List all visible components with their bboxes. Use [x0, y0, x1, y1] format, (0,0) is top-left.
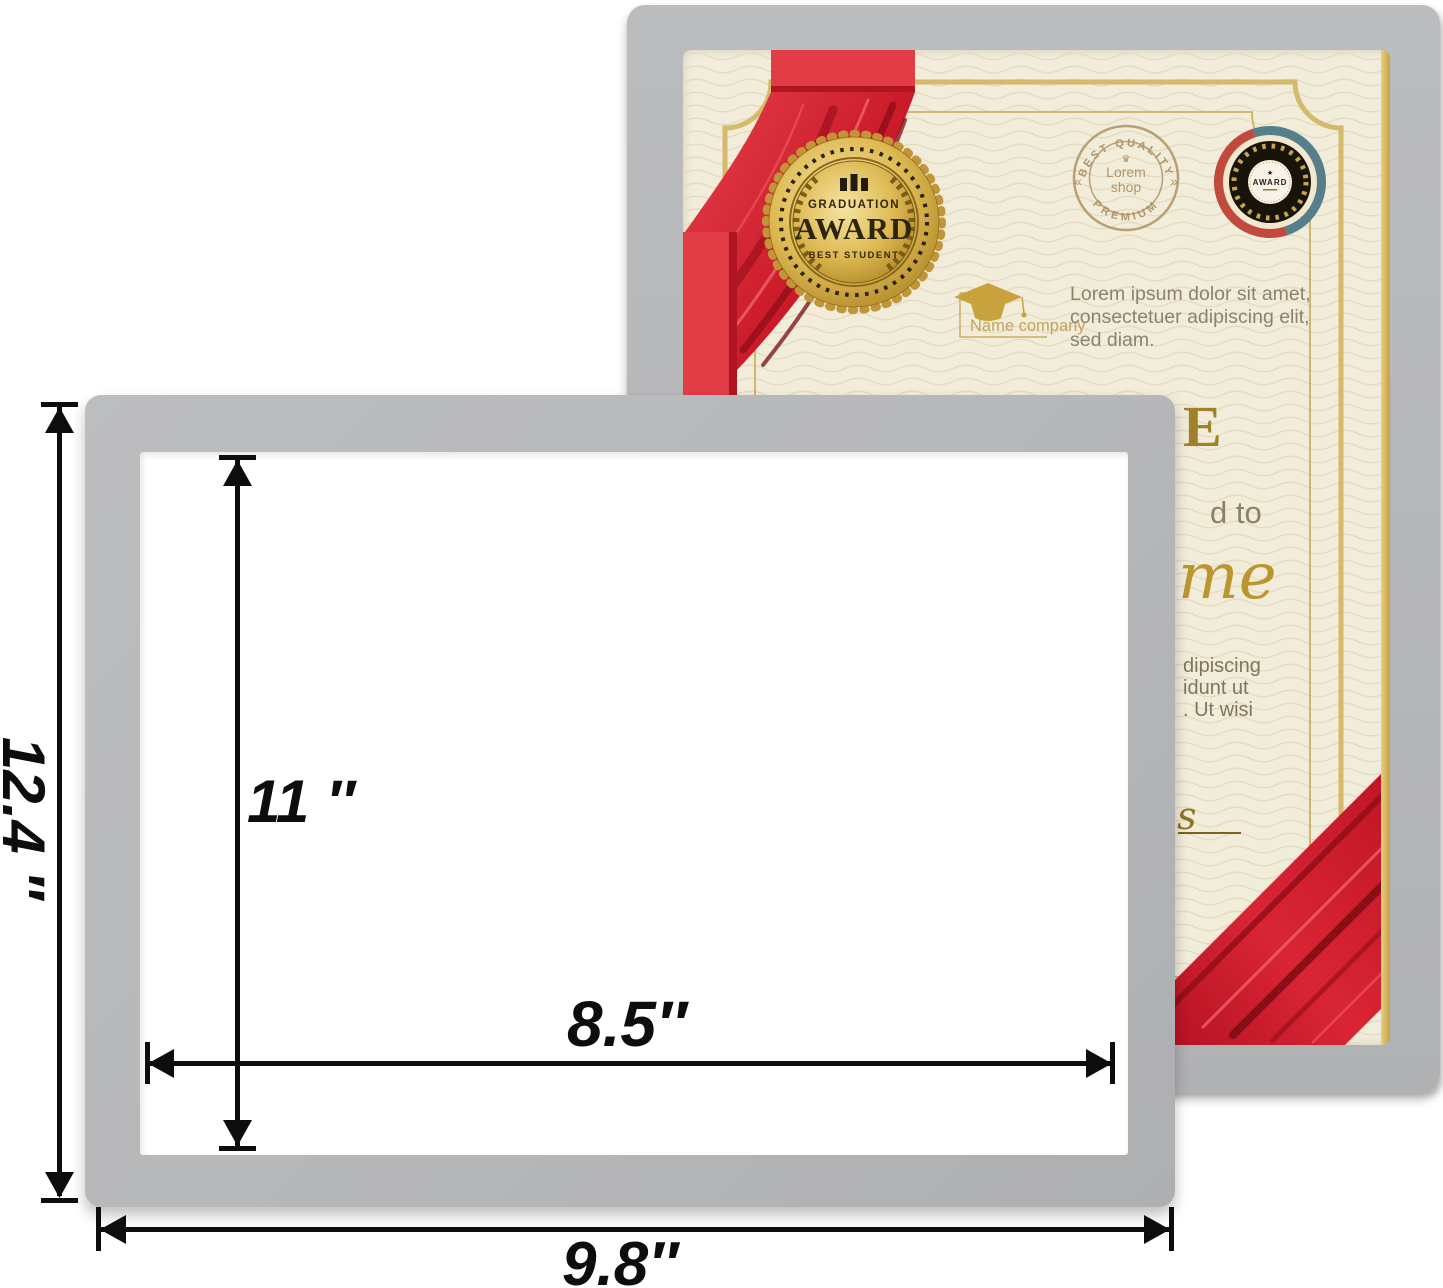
awarded-to-fragment: d to	[1210, 495, 1262, 530]
intro-line: sed diam.	[1070, 329, 1155, 351]
inner-height-label: 11 ″	[247, 772, 355, 832]
stamp-center-line2: shop	[1111, 179, 1142, 195]
page-edge-gold	[1381, 50, 1390, 1045]
intro-line: consectetuer adipiscing elit,	[1070, 306, 1310, 328]
body-text-fragment: . Ut wisi	[1183, 699, 1253, 721]
stamp-left-mark: «	[1074, 173, 1082, 189]
seal-top-text: GRADUATION	[808, 199, 900, 211]
quality-stamp-icon: BEST QUALITY PREMIUM ♛ Lorem shop « »	[1074, 126, 1178, 230]
outer-width-label: 9.8″	[562, 1234, 678, 1288]
stamp-right-mark: »	[1170, 173, 1178, 189]
seal-main-text: AWARD	[795, 211, 914, 246]
recipient-name-fragment: me	[1178, 540, 1277, 614]
graduation-seal-icon: GRADUATION AWARD BEST STUDENT	[766, 134, 942, 310]
intro-line: Lorem ipsum dolor sit amet,	[1070, 283, 1311, 305]
outer-height-label: 12.4 ″	[0, 728, 53, 908]
inner-width-label: 8.5″	[567, 992, 687, 1056]
product-dimension-diagram: GRADUATION AWARD BEST STUDENT BEST QUALI…	[0, 0, 1443, 1288]
medal-label: AWARD	[1253, 178, 1288, 187]
body-text-fragment: idunt ut	[1183, 677, 1249, 699]
company-name: Name company	[970, 317, 1086, 335]
signature-fragment: s	[1177, 794, 1197, 838]
seal-sub-text: BEST STUDENT	[809, 250, 900, 261]
stamp-center-line1: Lorem	[1106, 164, 1146, 180]
certificate-title-fragment: E	[1183, 394, 1224, 459]
body-text-fragment: dipiscing	[1183, 655, 1261, 677]
medal-star-icon: ★	[1267, 169, 1273, 177]
